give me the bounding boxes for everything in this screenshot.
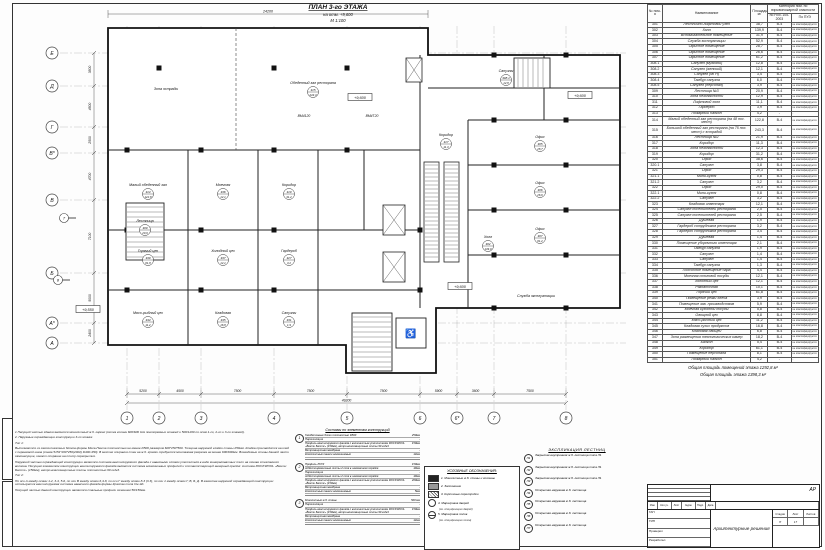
sheet-label: Лист <box>788 510 803 518</box>
svg-text:12,1: 12,1 <box>220 195 226 199</box>
legend-item-sub: (см. спецификацию полов) <box>439 519 516 522</box>
svg-text:6: 6 <box>419 416 422 422</box>
svg-text:Санузлы: Санузлы <box>499 69 514 73</box>
svg-text:139,9: 139,9 <box>485 247 492 251</box>
svg-text:24200: 24200 <box>262 10 273 14</box>
stair-explication-item: Л5Открытая наружная ж.б. лестница <box>524 500 630 509</box>
sheet-margin-stamp-bottom <box>2 481 13 547</box>
solid-swatch-icon <box>428 475 439 482</box>
revision-header-cell: Дата <box>706 502 716 509</box>
role-label: Проверил <box>648 529 710 538</box>
svg-text:49200: 49200 <box>342 399 352 403</box>
project-title: Архитектурные решения <box>711 510 773 547</box>
note-paragraph: Выполняются из газосиликатных блоков фир… <box>15 447 291 459</box>
total-area-line-1: Общая площадь помещений этажа 1292,8 м² <box>647 365 819 370</box>
spec-panel: 3Монолитные ж.б. стены500 ммПароизоляция… <box>305 498 420 525</box>
table-cell: 243,3 <box>751 126 768 135</box>
legend-item: 1. Монолитные ж.б. стены и колонны <box>428 475 516 482</box>
circle-swatch-icon <box>428 499 436 507</box>
svg-text:61,8: 61,8 <box>145 261 151 265</box>
svg-text:308.1: 308.1 <box>502 76 510 80</box>
svg-text:3600: 3600 <box>472 389 480 393</box>
specs-title: Составы по элементам конструкций <box>295 428 420 432</box>
svg-text:309: 309 <box>142 226 147 230</box>
svg-text:ПЛАН 3-го ЭТАЖА: ПЛАН 3-го ЭТАЖА <box>308 4 367 11</box>
svg-text:А: А <box>49 341 54 347</box>
stage-sheet-block: Стадия Лист Листов П 17 <box>773 510 819 547</box>
drawing-sheet: ПЛАН 3-го ЭТАЖАна отм. +9,600М 1:1001234… <box>0 0 825 550</box>
svg-text:+9,600: +9,600 <box>354 96 367 100</box>
svg-text:5: 5 <box>346 416 349 422</box>
stage-value: П <box>773 518 788 526</box>
svg-text:16,8: 16,8 <box>220 323 226 327</box>
spec-line: Профиль вентилируемого фасада с волокнис… <box>305 508 420 515</box>
role-label: ГИП <box>648 519 710 528</box>
svg-text:11,3: 11,3 <box>443 145 449 149</box>
svg-text:307: 307 <box>537 234 542 238</box>
column-header: № пом-я <box>648 5 663 23</box>
table-row: 351Пожарный балкон4,2-- <box>648 357 819 363</box>
gray-swatch-icon <box>428 483 439 490</box>
spec-callout-mark: 2 <box>295 463 304 472</box>
svg-text:Коридор: Коридор <box>282 183 296 187</box>
svg-text:315: 315 <box>310 88 315 92</box>
title-block: АР Изм.Кол.уч.Лист№док.Подп.Дата ГАПГИПП… <box>647 484 820 548</box>
svg-text:4500: 4500 <box>88 103 92 111</box>
svg-text:+9,600: +9,600 <box>454 285 467 289</box>
table-cell: В-4 <box>768 126 791 135</box>
svg-text:7100: 7100 <box>88 233 92 241</box>
svg-text:12,1: 12,1 <box>220 261 226 265</box>
svg-text:ВМ4Т20: ВМ4Т20 <box>366 114 379 118</box>
stair-description: Открытая наружная ж.б. лестница <box>535 489 586 492</box>
stair-explication-item: Л6Открытая наружная ж.б. лестница <box>524 512 630 521</box>
legend-item-label: 3. Кирпичные перегородки <box>441 493 479 496</box>
table-row: 315Большой обеденный зал ресторана (на 7… <box>648 126 819 135</box>
role-label: ГАП <box>648 510 710 519</box>
svg-text:8: 8 <box>565 416 568 422</box>
svg-text:7500: 7500 <box>234 389 242 393</box>
legend-item-label: 1. Монолитные ж.б. стены и колонны <box>441 477 495 480</box>
spec-line: Композитные панели алюминиевые12мм <box>305 453 420 457</box>
sheet-margin-stamp-top <box>2 418 13 480</box>
stair-explication-item: Л4Открытая наружная ж.б. лестница <box>524 489 630 498</box>
svg-text:Мясо-рыбный цех: Мясо-рыбный цех <box>133 311 163 315</box>
stair-explication-item: Л7Открытая наружная ж.б. лестница <box>524 524 630 533</box>
svg-text:1: 1 <box>126 416 129 422</box>
svg-text:3500: 3500 <box>88 66 92 74</box>
table-cell: 4,2 <box>751 357 768 363</box>
svg-text:7: 7 <box>493 416 496 422</box>
note-paragraph: 2. Наружные ограждающие конструкции 3-го… <box>15 436 291 440</box>
table-cell: 315 <box>648 126 663 135</box>
table-cell: Пожарный балкон <box>662 357 751 363</box>
svg-text:5900: 5900 <box>435 389 443 393</box>
svg-text:Д: Д <box>49 84 54 90</box>
svg-text:243,3: 243,3 <box>309 93 317 97</box>
svg-text:2: 2 <box>157 416 161 422</box>
svg-text:Горячий цех: Горячий цех <box>138 249 158 253</box>
revision-header-cell: Изм. <box>648 502 658 509</box>
revision-header-cell: №док. <box>682 502 696 509</box>
sheet-number: 17 <box>788 518 803 526</box>
svg-text:3,2: 3,2 <box>287 261 291 265</box>
svg-text:31,2: 31,2 <box>286 195 292 199</box>
svg-text:Обеденный зал ресторана: Обеденный зал ресторана <box>290 81 336 85</box>
table-cell: 122,8 <box>751 117 768 126</box>
table-cell: - <box>768 357 791 363</box>
total-area-line-2: Общая площадь этажа 1398,3 м² <box>647 372 819 377</box>
svg-text:3: 3 <box>200 416 203 422</box>
note-paragraph: По оси А между осями 1-2, 3-4, 5-6, по о… <box>15 480 291 488</box>
svg-text:336: 336 <box>220 190 225 194</box>
svg-text:7500: 7500 <box>526 389 534 393</box>
stair-mark: Л5 <box>524 500 533 509</box>
stair-description: Открытая наружная ж.б. лестница <box>535 500 586 503</box>
stair-description: Закрытая внутренняя ж.б. лестница типа Л… <box>535 466 601 469</box>
hatch-swatch-icon <box>428 491 439 498</box>
svg-text:302: 302 <box>485 242 490 246</box>
table-cell: В-4 <box>768 117 791 126</box>
plan-root: ПЛАН 3-го ЭТАЖАна отм. +9,600М 1:1001234… <box>46 4 626 424</box>
legend-item-label: 5. Маркировка полов <box>438 513 467 516</box>
stair-description: Закрытая внутренняя ж.б. лестница типа Л… <box>535 477 601 480</box>
revision-rows <box>648 485 711 501</box>
document-code-area: АР <box>711 485 819 501</box>
svg-text:Гардероб: Гардероб <box>281 249 298 253</box>
svg-text:+9,550: +9,550 <box>82 308 95 312</box>
floor-plan: ПЛАН 3-го ЭТАЖАна отм. +9,600М 1:1001234… <box>8 0 648 430</box>
svg-text:М 1:100: М 1:100 <box>330 18 346 23</box>
circle2-swatch-icon <box>428 511 436 519</box>
legend-item: 5. Маркировка полов <box>428 511 516 519</box>
svg-text:Малый обеденный зал: Малый обеденный зал <box>129 183 167 187</box>
table-cell: 314 <box>648 117 663 126</box>
svg-text:А*: А* <box>48 321 55 327</box>
svg-text:на отм. +9,600: на отм. +9,600 <box>323 12 353 17</box>
svg-text:ВМ4120: ВМ4120 <box>298 114 311 118</box>
note-paragraph: Наружной частью ограждающей конструкции … <box>15 461 291 473</box>
legend-title: УСЛОВНЫЕ ОБОЗНАЧЕНИЯ: <box>428 469 516 473</box>
role-label: Разработал <box>648 538 710 547</box>
svg-text:345: 345 <box>220 318 225 322</box>
legend-item: 2. Заполнение <box>428 483 516 490</box>
stair-explication-item: Л1Закрытая внутренняя ж.б. лестница типа… <box>524 454 630 463</box>
svg-text:Зона эстрады: Зона эстрады <box>154 87 179 91</box>
stair-mark: Л1 <box>524 454 533 463</box>
legend-item: 4. Маркировка дверей <box>428 499 516 507</box>
stairs-explication: ЭКСПЛИКАЦИЯ ЛЕСТНИЦ Л1Закрытая внутрення… <box>524 448 630 548</box>
svg-text:4: 4 <box>273 416 276 422</box>
document-code: АР <box>809 487 816 493</box>
svg-text:Офис: Офис <box>535 181 545 185</box>
column-header: Наименование <box>662 5 751 23</box>
stair-mark: Л2 <box>524 466 533 475</box>
svg-text:Моечная: Моечная <box>216 183 231 187</box>
svg-text:7500: 7500 <box>380 389 388 393</box>
legend-item-label: 2. Заполнение <box>441 485 461 488</box>
table-cell: Малый обеденный зал ресторана (на 48 пос… <box>662 117 751 126</box>
stair-explication-item: Л3Закрытая внутренняя ж.б. лестница типа… <box>524 477 630 486</box>
svg-text:Санузлы: Санузлы <box>282 311 297 315</box>
svg-text:7500: 7500 <box>307 389 315 393</box>
note-paragraph: 1 Несущей частью здания является монолит… <box>15 431 291 435</box>
svg-text:5200: 5200 <box>139 389 147 393</box>
revision-header-row: Изм.Кол.уч.Лист№док.Подп.Дата <box>648 502 819 510</box>
svg-text:26,6: 26,6 <box>536 193 543 197</box>
stair-description: Закрытая внутренняя ж.б. лестница типа Л… <box>535 454 601 457</box>
legend-item: 3. Кирпичные перегородки <box>428 491 516 498</box>
stair-explication-item: Л2Закрытая внутренняя ж.б. лестница типа… <box>524 466 630 475</box>
svg-text:Офис: Офис <box>535 135 545 139</box>
table-cell: - <box>791 357 818 363</box>
svg-text:319: 319 <box>286 190 291 194</box>
note-paragraph: Тип 1: <box>15 442 291 446</box>
svg-text:Коридор: Коридор <box>439 133 453 137</box>
revision-header-cell: Подп. <box>696 502 706 509</box>
spec-line: Композитные панели алюминиевые5мм <box>305 490 420 494</box>
legend: УСЛОВНЫЕ ОБОЗНАЧЕНИЯ: 1. Монолитные ж.б.… <box>424 466 520 550</box>
stairs-explication-title: ЭКСПЛИКАЦИЯ ЛЕСТНИЦ <box>524 448 630 452</box>
signature-roles: ГАПГИППроверилРазработал <box>648 510 711 547</box>
table-cell: Большой обеденный зал ресторана (на 75 п… <box>662 126 751 135</box>
column-header: По ПУЭ <box>791 13 818 22</box>
sheets-total <box>804 518 819 526</box>
svg-text:20,9: 20,9 <box>141 231 148 235</box>
wall-assembly-specs: Составы по элементам конструкций 1Газобе… <box>295 428 420 548</box>
column-header: Категория пом. по взрывопожарной опаснос… <box>768 5 819 14</box>
spec-panel: 2Профиль ЛСТК150ммАсбестоцементные листы… <box>305 462 420 497</box>
stage-label: Стадия <box>773 510 788 518</box>
column-header: Площадь м² <box>751 5 768 23</box>
note-paragraph: Несущей частью данной конструкции являют… <box>15 489 291 493</box>
svg-text:5000: 5000 <box>88 294 92 302</box>
legend-item-label: 4. Маркировка дверей <box>438 502 469 505</box>
svg-text:61,2: 61,2 <box>537 239 543 243</box>
svg-text:1,9: 1,9 <box>287 323 291 327</box>
room-explication-panel: № пом-яНаименованиеПлощадь м²Категория п… <box>647 4 819 482</box>
svg-text:4700: 4700 <box>88 173 92 181</box>
stair-description: Открытая наружная ж.б. лестница <box>535 512 586 515</box>
svg-text:Холл: Холл <box>483 235 492 239</box>
svg-text:317: 317 <box>443 140 448 144</box>
spec-panel: 1Газобетонные блоки плотностью D500250мм… <box>305 433 420 460</box>
svg-text:314: 314 <box>145 190 150 194</box>
svg-text:327: 327 <box>286 256 291 260</box>
svg-text:12,8: 12,8 <box>503 81 509 85</box>
table-cell: не классифицируется <box>791 126 818 135</box>
wheelchair-icon: ♿ <box>405 328 416 339</box>
svg-text:2500: 2500 <box>88 136 92 145</box>
table-cell: не классифицируется <box>791 117 818 126</box>
table-cell: 351 <box>648 357 663 363</box>
column-header: по НПБ 105-2003 <box>768 13 791 22</box>
svg-text:4500: 4500 <box>176 389 184 393</box>
svg-text:11,2: 11,2 <box>145 323 151 327</box>
svg-text:339: 339 <box>145 256 150 260</box>
svg-text:Офис: Офис <box>535 227 545 231</box>
construction-notes: 1 Несущей частью здания является монолит… <box>15 431 291 547</box>
svg-text:331: 331 <box>286 318 291 322</box>
stair-description: Открытая наружная ж.б. лестница <box>535 524 586 527</box>
svg-text:122,8: 122,8 <box>145 195 152 199</box>
svg-text:Кладовая: Кладовая <box>215 311 231 315</box>
stair-mark: Л6 <box>524 512 533 521</box>
revision-header-cell: Кол.уч. <box>658 502 672 509</box>
svg-text:2400: 2400 <box>88 329 92 338</box>
room-explication-table: № пом-яНаименованиеПлощадь м²Категория п… <box>647 4 819 363</box>
svg-text:Служба эксплуатации: Служба эксплуатации <box>517 294 555 298</box>
stair-mark: Л3 <box>524 477 533 486</box>
svg-text:+9,600: +9,600 <box>574 94 587 98</box>
accessible-lift: ♿ <box>396 318 426 348</box>
svg-text:Холодный цех: Холодный цех <box>210 249 235 253</box>
stair-mark: Л7 <box>524 524 533 533</box>
svg-text:344: 344 <box>145 318 150 322</box>
spec-callout-mark: 3 <box>295 499 304 508</box>
stair-mark: Л4 <box>524 489 533 498</box>
svg-text:305: 305 <box>537 142 542 146</box>
svg-text:337: 337 <box>220 256 225 260</box>
table-row: 314Малый обеденный зал ресторана (на 48 … <box>648 117 819 126</box>
revision-header-cell: Лист <box>672 502 682 509</box>
sheets-label: Листов <box>804 510 819 518</box>
svg-text:28,7: 28,7 <box>536 147 543 151</box>
spec-line: Композитные панели алюминиевые12мм <box>305 519 420 523</box>
note-paragraph: Тип 2: <box>15 474 291 478</box>
spec-callout-mark: 1 <box>295 434 304 443</box>
svg-text:306: 306 <box>537 188 542 192</box>
svg-text:Лестница: Лестница <box>135 219 153 223</box>
